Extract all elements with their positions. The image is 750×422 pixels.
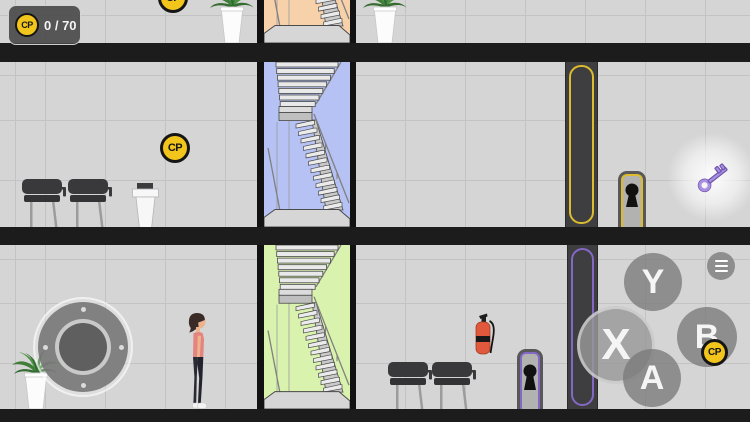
cp-counter: CP 0 / 70: [8, 5, 81, 45]
floor-slab-2: [0, 227, 750, 245]
y-button[interactable]: Y: [624, 253, 682, 311]
shaft-outline-yellow: [569, 65, 594, 224]
floor-slab-1: [0, 43, 750, 62]
potted-plant: [207, 0, 257, 44]
cp-coin-label: CP: [21, 20, 33, 30]
hamburger-icon: [715, 260, 728, 263]
cp-coin: CP: [160, 133, 190, 163]
cp-progress-text: 0 / 70: [44, 18, 77, 33]
cp-coin-icon: CP: [15, 13, 39, 37]
game-screen: CP CP CP CP 0 / 70: [0, 0, 750, 422]
keyhole-icon: [517, 349, 543, 409]
locked-door-bottom: [517, 349, 543, 409]
keyhole-icon: [618, 171, 646, 227]
staircase-graphic: [264, 62, 350, 227]
floor-slab-3: [0, 409, 750, 422]
stairwell-top-room: [264, 0, 350, 43]
elevator-shaft-middle: [566, 62, 597, 227]
stairwell-middle: [257, 62, 356, 227]
joystick-dot-down: [81, 383, 86, 388]
player-character: [184, 312, 210, 410]
hamburger-icon: [715, 270, 728, 273]
cp-coin-label: CP: [708, 347, 721, 358]
cp-coin-label: CP: [168, 142, 182, 154]
potted-plant: [360, 0, 410, 44]
joystick-knob[interactable]: [55, 319, 111, 375]
staircase-graphic: [264, 0, 350, 43]
stairwell-middle-room: [264, 62, 350, 227]
joystick-dot-up: [81, 307, 86, 312]
cp-coin-label: CP: [166, 0, 180, 4]
stairwell-top: [257, 0, 356, 43]
staircase-graphic: [264, 245, 350, 409]
office-chair: [432, 362, 477, 410]
fire-extinguisher: [474, 312, 496, 360]
stairwell-bottom-room: [264, 245, 350, 409]
hamburger-icon: [715, 265, 728, 268]
joystick-dot-left: [43, 345, 48, 350]
office-chair: [68, 179, 113, 227]
menu-button[interactable]: [707, 252, 735, 280]
stairwell-bottom: [257, 245, 356, 409]
locked-door-middle: [618, 171, 646, 227]
joystick-dot-right: [119, 345, 124, 350]
a-button[interactable]: A: [623, 349, 681, 407]
trash-can: [132, 183, 159, 229]
office-chair: [388, 362, 433, 410]
cp-coin: CP: [701, 339, 728, 366]
office-chair: [22, 179, 67, 227]
